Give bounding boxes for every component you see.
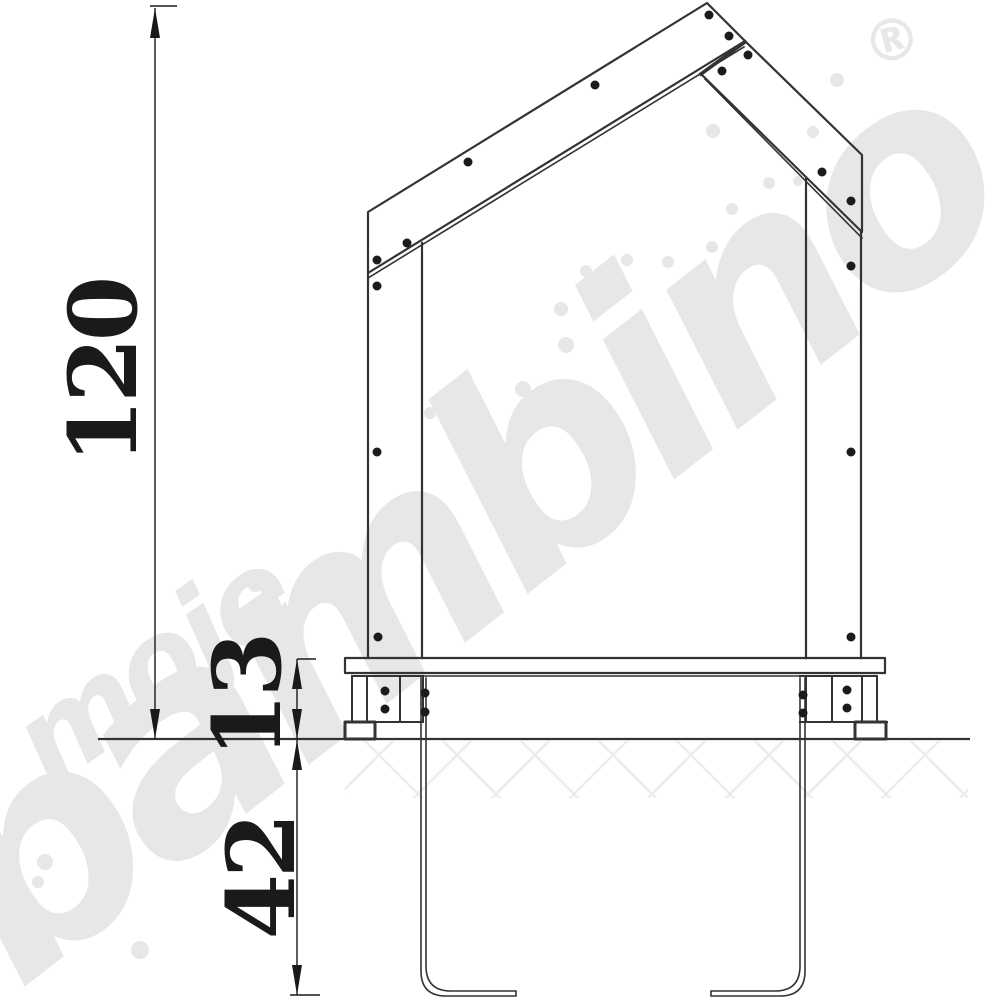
dimension-120-label: 120	[49, 280, 159, 464]
dimension-42-label: 42	[207, 817, 317, 940]
right-foot-plate	[855, 722, 886, 739]
screw-dot	[847, 197, 856, 206]
right-bracket	[800, 676, 887, 722]
screw-dot	[374, 633, 383, 642]
watermark-dot	[515, 381, 531, 397]
screw-dot	[373, 256, 382, 265]
screw-dot	[818, 168, 827, 177]
watermark: moje bambino ®	[0, 0, 1000, 1000]
watermark-dot	[37, 854, 53, 870]
screw-dot	[381, 705, 390, 714]
soil-hatch	[345, 741, 968, 798]
watermark-dot	[131, 941, 149, 959]
screw-dot	[421, 708, 430, 717]
screw-dot	[373, 448, 382, 457]
screw-dot	[843, 704, 852, 713]
watermark-dot	[32, 876, 44, 888]
right-ground-anchor	[711, 678, 805, 996]
watermark-dot	[830, 73, 844, 87]
screw-dot	[725, 32, 734, 41]
screw-dot	[421, 689, 430, 698]
watermark-dot	[580, 265, 592, 277]
screw-dot	[843, 686, 852, 695]
screw-dot	[799, 691, 808, 700]
screw-dot	[847, 633, 856, 642]
screw-dot	[403, 239, 412, 248]
technical-drawing-svg: moje bambino ® 120	[0, 0, 1000, 1000]
screw-dot	[381, 687, 390, 696]
screw-dot	[847, 448, 856, 457]
watermark-dot	[807, 126, 819, 138]
screw-dot	[373, 282, 382, 291]
screw-dot	[847, 262, 856, 271]
technical-drawing-page: moje bambino ® 120	[0, 0, 1000, 1000]
watermark-dot	[248, 578, 262, 592]
screw-dot	[799, 709, 808, 718]
watermark-bambino-text: bambino	[0, 1, 1000, 1000]
watermark-dot	[558, 337, 574, 353]
watermark-dot	[459, 421, 473, 435]
watermark-dot	[554, 302, 568, 316]
screw-dot	[705, 11, 714, 20]
watermark-dot	[837, 230, 845, 238]
arrow-down-icon	[292, 965, 302, 995]
watermark-dot	[621, 254, 633, 266]
screw-dot	[718, 67, 727, 76]
watermark-dot	[706, 124, 720, 138]
arrow-up-icon	[150, 8, 160, 38]
screw-dot	[464, 158, 473, 167]
screw-dot	[744, 51, 753, 60]
watermark-dot	[75, 788, 89, 802]
watermark-dot	[763, 177, 775, 189]
watermark-dot	[662, 256, 674, 268]
watermark-dot	[424, 407, 436, 419]
dimension-13-label: 13	[193, 636, 303, 759]
screw-dot	[591, 81, 600, 90]
watermark-dot	[726, 203, 738, 215]
watermark-dot	[706, 241, 718, 253]
